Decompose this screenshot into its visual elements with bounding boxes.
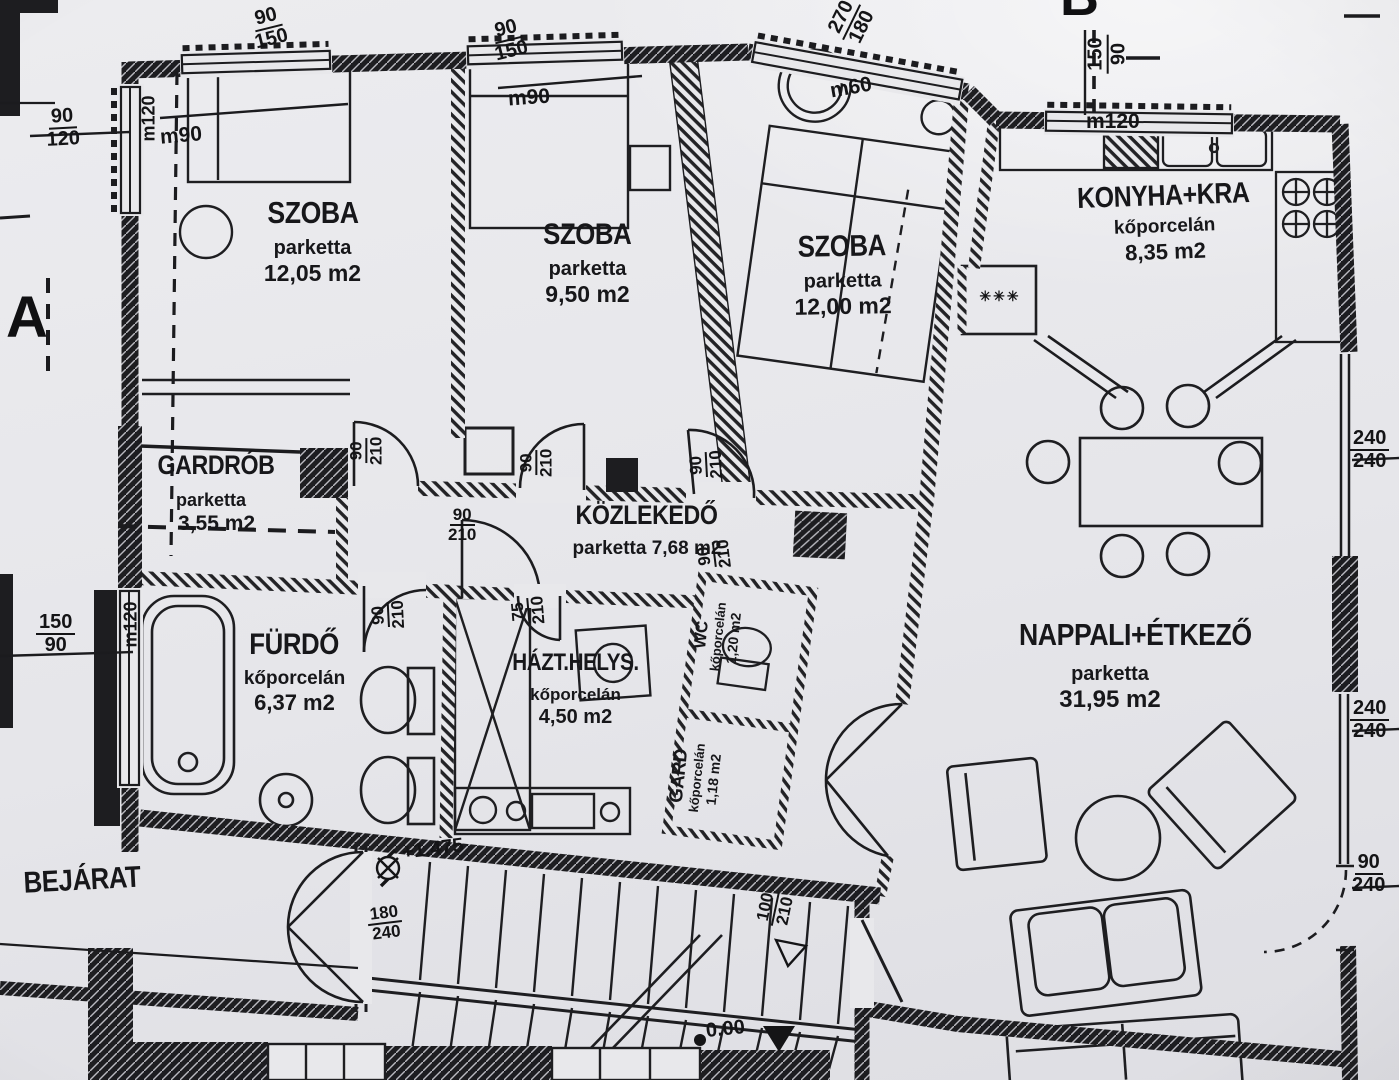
dim-window-furdo: 15090 [36,612,75,656]
room-label-konyha: KONYHA+KRA kőporcelán 8,35 m2 [1051,176,1279,268]
room-label-furdo: FÜRDŐ kőporcelán 6,37 m2 [212,628,377,715]
dim-door-szoba3: 90210 [687,450,726,480]
section-marker-a: A [6,284,48,351]
room-label-szoba1: SZOBA parketta 12,05 m2 [225,196,400,287]
level-triangle-open-icon [776,940,806,966]
room-label-hazt: HÁZT.HELYS. kőporcelán 4,50 m2 [488,650,663,728]
door-stairwell [850,918,902,1008]
door-terrace [1264,866,1354,952]
window-szoba2 [466,35,625,70]
dining-set [1027,385,1262,577]
section-marker-b: B [1060,0,1099,28]
room-label-szoba2: SZOBA parketta 9,50 m2 [505,218,670,308]
door-living [826,704,902,856]
floorplan-photo: SZOBA parketta 12,05 m2 SZOBA parketta 9… [0,0,1399,1080]
dim-door-entry: 180240 [366,902,405,944]
sill-window-konyha: m120 [1086,110,1140,134]
pantry-symbol: ✳✳✳ [964,288,1036,305]
room-label-gardrob: GARDRÓB parketta 3,55 m2 [148,450,318,536]
sill-window-szoba2: m90 [507,85,551,112]
sill-window-furdo: m120 [121,601,142,647]
stove-burners-icon [1283,179,1340,237]
dim-window-left-upper: 90120 [45,105,81,151]
sill-window-szoba1: m90 [159,122,203,150]
dim-door-szoba2: 90210 [517,449,555,477]
dim-terrace-opening-2: 240240 [1350,698,1389,742]
kitchen-opening-splays [1034,336,1296,398]
entry-door-wall [288,842,372,1012]
dim-door-kozlekedo: 90210 [448,506,476,544]
level-ground: 0.00 [705,1016,746,1043]
room-label-szoba3: SZOBA parketta 12,00 m2 [759,229,926,322]
dim-door-stairwell: 100210 [753,888,797,929]
dim-door-furdo: 90210 [369,600,408,630]
sill-window-left-upper: m120 [139,95,160,141]
level-triangle-filled-icon [763,1026,795,1052]
survey-cross-icon [377,850,399,886]
dim-terrace-door: 90240 [1352,852,1385,896]
dim-window-konyha: 15090 [1086,34,1130,73]
dim-door-wc: 90210 [694,538,735,571]
dim-door-szoba1: 90210 [347,437,385,465]
dim-terrace-opening-1: 240240 [1350,428,1389,472]
room-label-nappali: NAPPALI+ÉTKEZŐ parketta 31,95 m2 [1000,618,1220,714]
sofa [1010,889,1203,1016]
dim-door-hazt: 75210 [508,595,548,627]
